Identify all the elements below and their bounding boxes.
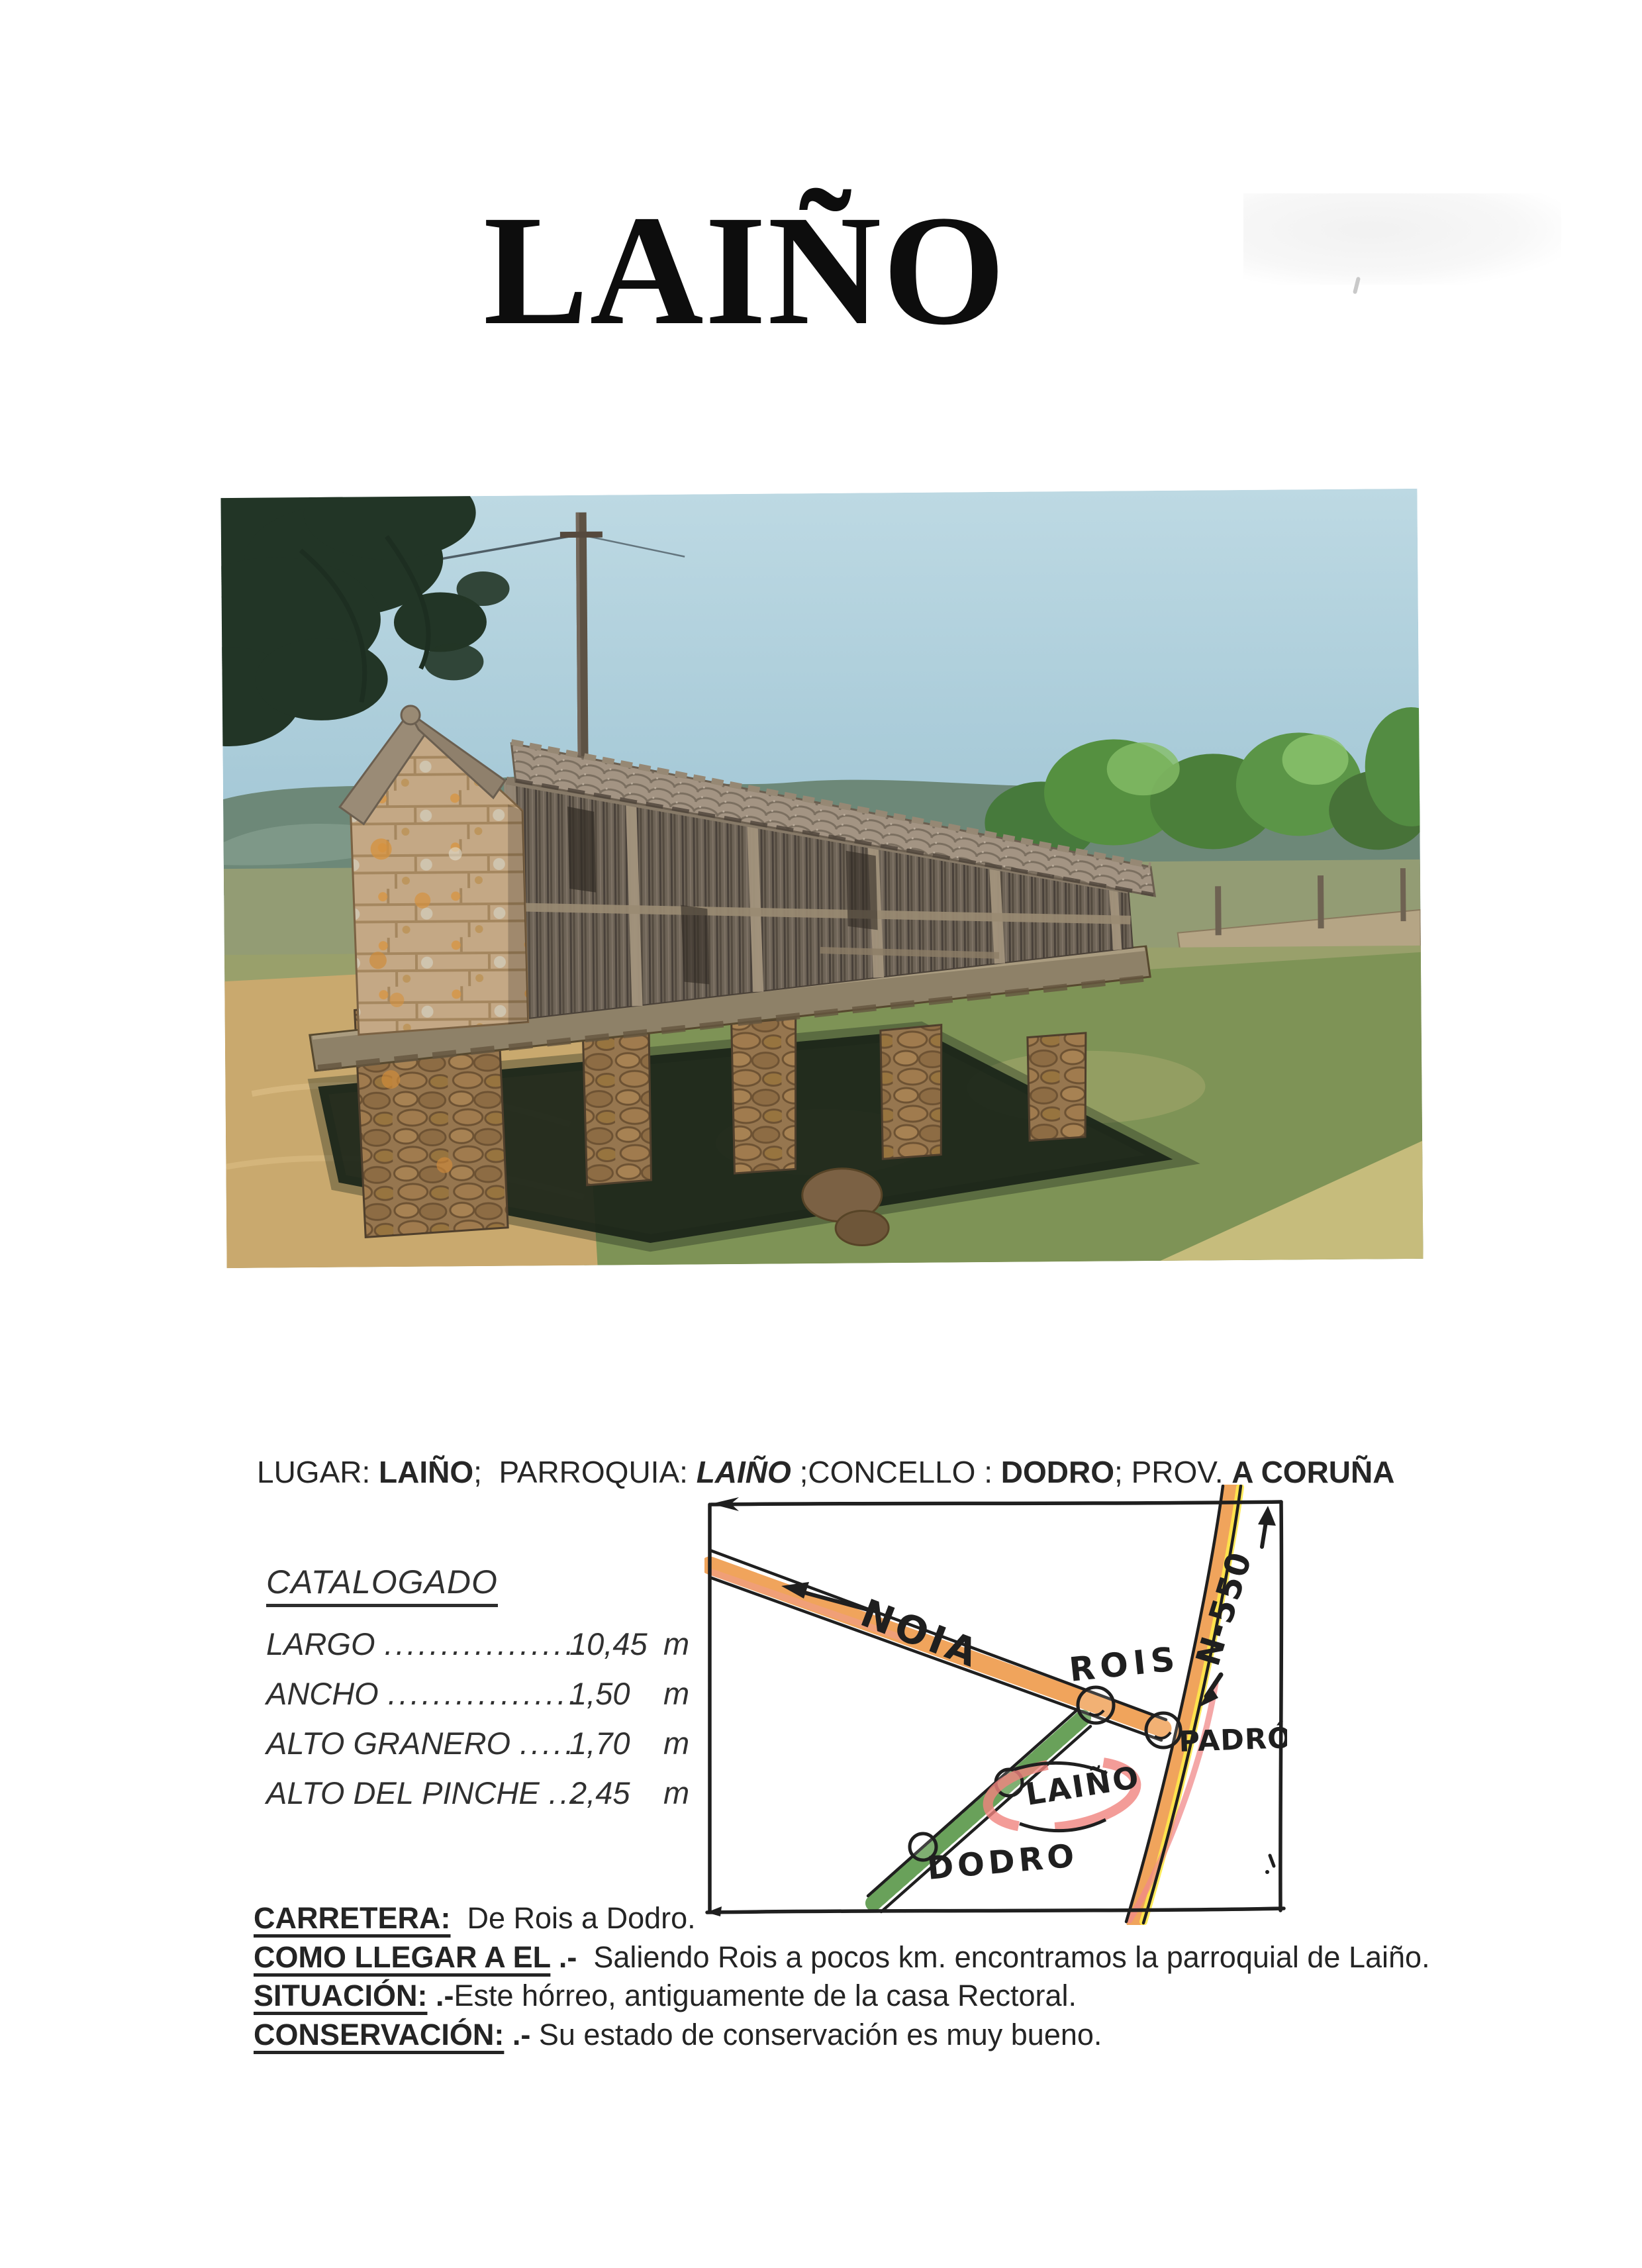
info-row-text: Este hórreo, antiguamente de la casa Rec… xyxy=(454,1979,1077,2012)
catalog-row-unit: m xyxy=(663,1725,689,1761)
label-padron: PADRÓN xyxy=(1179,1720,1287,1759)
catalog-block: CATALOGADO LARGO..................10,45m… xyxy=(266,1563,730,1824)
catalog-row-unit: m xyxy=(663,1675,689,1712)
catalog-row-label: ANCHO xyxy=(266,1676,379,1711)
catalog-row-leader: .................. xyxy=(385,1626,588,1661)
info-row: SITUACIÓN: .-Este hórreo, antiguamente d… xyxy=(254,1977,1430,2016)
catalog-row: LARGO..................10,45m xyxy=(266,1626,730,1675)
catalog-rows: LARGO..................10,45mANCHO......… xyxy=(266,1626,730,1824)
info-row-separator: .- xyxy=(550,1940,593,1974)
n550-up-arrow-icon xyxy=(1258,1506,1276,1547)
scan-smudge xyxy=(1243,193,1561,285)
catalog-row-label: ALTO DEL PINCHE xyxy=(266,1775,540,1810)
ink-dot xyxy=(1265,1870,1269,1874)
info-row-separator: .- xyxy=(428,1979,454,2012)
catalog-heading: CATALOGADO xyxy=(266,1563,498,1607)
info-row: COMO LLEGAR A EL .- Saliendo Rois a poco… xyxy=(254,1938,1430,1977)
info-row-separator: .- xyxy=(504,2018,539,2051)
lugar-segment: ; PARROQUIA: xyxy=(473,1455,697,1489)
horreo-photograph xyxy=(220,489,1423,1268)
label-n550: N-550 xyxy=(1188,1547,1259,1670)
lugar-segment: LAIÑO xyxy=(379,1455,473,1489)
info-row-text: Saliendo Rois a pocos km. encontramos la… xyxy=(593,1940,1429,1974)
catalog-row-label: ALTO GRANERO xyxy=(266,1726,510,1761)
info-row-label: CONSERVACIÓN: xyxy=(254,2018,504,2051)
ink-speck xyxy=(1270,1855,1274,1866)
catalog-row-value: 1,50 xyxy=(569,1675,630,1712)
gable-peak-stone xyxy=(401,706,420,724)
info-rows: CARRETERA: De Rois a Dodro.COMO LLEGAR A… xyxy=(254,1899,1430,2054)
page-title: LAIÑO xyxy=(483,192,1006,350)
catalog-row: ALTO DEL PINCHE...2,45m xyxy=(266,1775,730,1824)
catalog-row-leader: ................. xyxy=(388,1676,580,1711)
info-row-text: De Rois a Dodro. xyxy=(451,1901,696,1935)
label-noia: NOIA xyxy=(855,1591,987,1677)
label-rois: ROIS xyxy=(1067,1640,1182,1689)
document-page: LAIÑO xyxy=(0,0,1642,2268)
sketch-map: NOIA N-550 ROIS PADRÓN LAIÑO DODRO xyxy=(704,1485,1287,1925)
catalog-row-value: 1,70 xyxy=(569,1725,630,1761)
pole-crossarm xyxy=(560,532,603,538)
catalog-row-value: 10,45 xyxy=(569,1626,648,1662)
photo-scene xyxy=(220,489,1423,1268)
catalog-row-unit: m xyxy=(663,1775,689,1811)
rois-junction xyxy=(1078,1687,1114,1723)
info-row: CARRETERA: De Rois a Dodro. xyxy=(254,1899,1430,1938)
catalog-row-unit: m xyxy=(663,1626,689,1662)
catalog-row: ALTO GRANERO.....1,70m xyxy=(266,1725,730,1775)
info-row: CONSERVACIÓN: .- Su estado de conservaci… xyxy=(254,2016,1430,2055)
info-row-label: SITUACIÓN: xyxy=(254,1979,428,2012)
info-row-label: COMO LLEGAR A EL xyxy=(254,1940,550,1974)
catalog-row-leader: ..... xyxy=(520,1726,576,1761)
catalog-row: ANCHO.................1,50m xyxy=(266,1675,730,1725)
catalog-row-label: LARGO xyxy=(266,1626,375,1661)
catalog-row-value: 2,45 xyxy=(569,1775,630,1811)
info-row-text: Su estado de conservación es muy bueno. xyxy=(539,2018,1102,2051)
lugar-segment: LUGAR: xyxy=(257,1455,379,1489)
padron-junction xyxy=(1146,1713,1181,1748)
info-row-label: CARRETERA: xyxy=(254,1901,451,1935)
